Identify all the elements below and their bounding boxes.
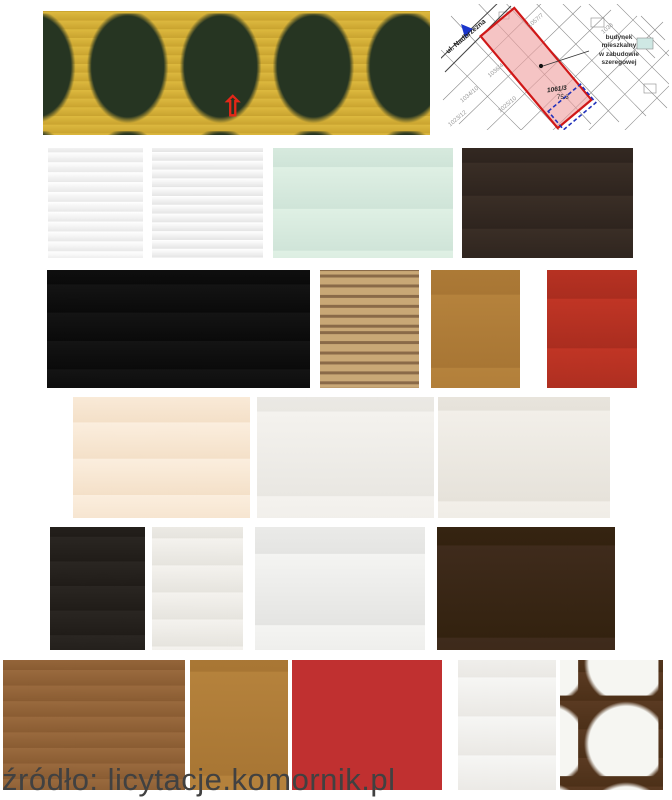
map-parcel-area: 75.3 — [557, 95, 569, 101]
photo-shower-bathroom — [547, 270, 637, 388]
photo-hallway-stairs — [438, 397, 610, 518]
map-annotation-line: mieszkalny — [587, 42, 651, 50]
photo-sitting-room — [73, 397, 250, 518]
photo-kitchen-dark-cabinets — [273, 148, 453, 258]
photo-facade-side — [152, 148, 263, 258]
photo-street-view — [43, 11, 430, 135]
photo-green-bedroom — [257, 397, 434, 518]
photo-toilet-room — [50, 527, 145, 650]
photo-room-wardrobe — [437, 527, 615, 650]
photo-kitchen-fridge — [255, 527, 425, 650]
cadastral-map: ul. Nadbrzeżna budynek mieszkalny w zabu… — [441, 4, 669, 130]
photo-bathtub-washer — [152, 527, 243, 650]
photo-living-dining-room — [462, 148, 633, 258]
map-annotation-line: w zabudowie — [587, 51, 651, 59]
map-annotation-line: budynek — [587, 34, 651, 42]
photo-yellow-bathroom-toilet — [458, 660, 556, 790]
photo-brick-staircase — [320, 270, 419, 388]
photo-facade-front — [48, 148, 143, 258]
map-annotation-line: szeregowej — [587, 59, 651, 67]
red-arrow-marker — [221, 93, 244, 121]
photo-teal-hallway — [431, 270, 520, 388]
map-annotation: budynek mieszkalny w zabudowie szeregowe… — [587, 34, 651, 68]
parcel-point — [539, 64, 543, 68]
photo-living-room-tv — [47, 270, 310, 388]
photo-yellow-bathroom-tub — [560, 660, 663, 790]
source-caption: źródło: licytacje.komornik.pl — [2, 763, 396, 797]
